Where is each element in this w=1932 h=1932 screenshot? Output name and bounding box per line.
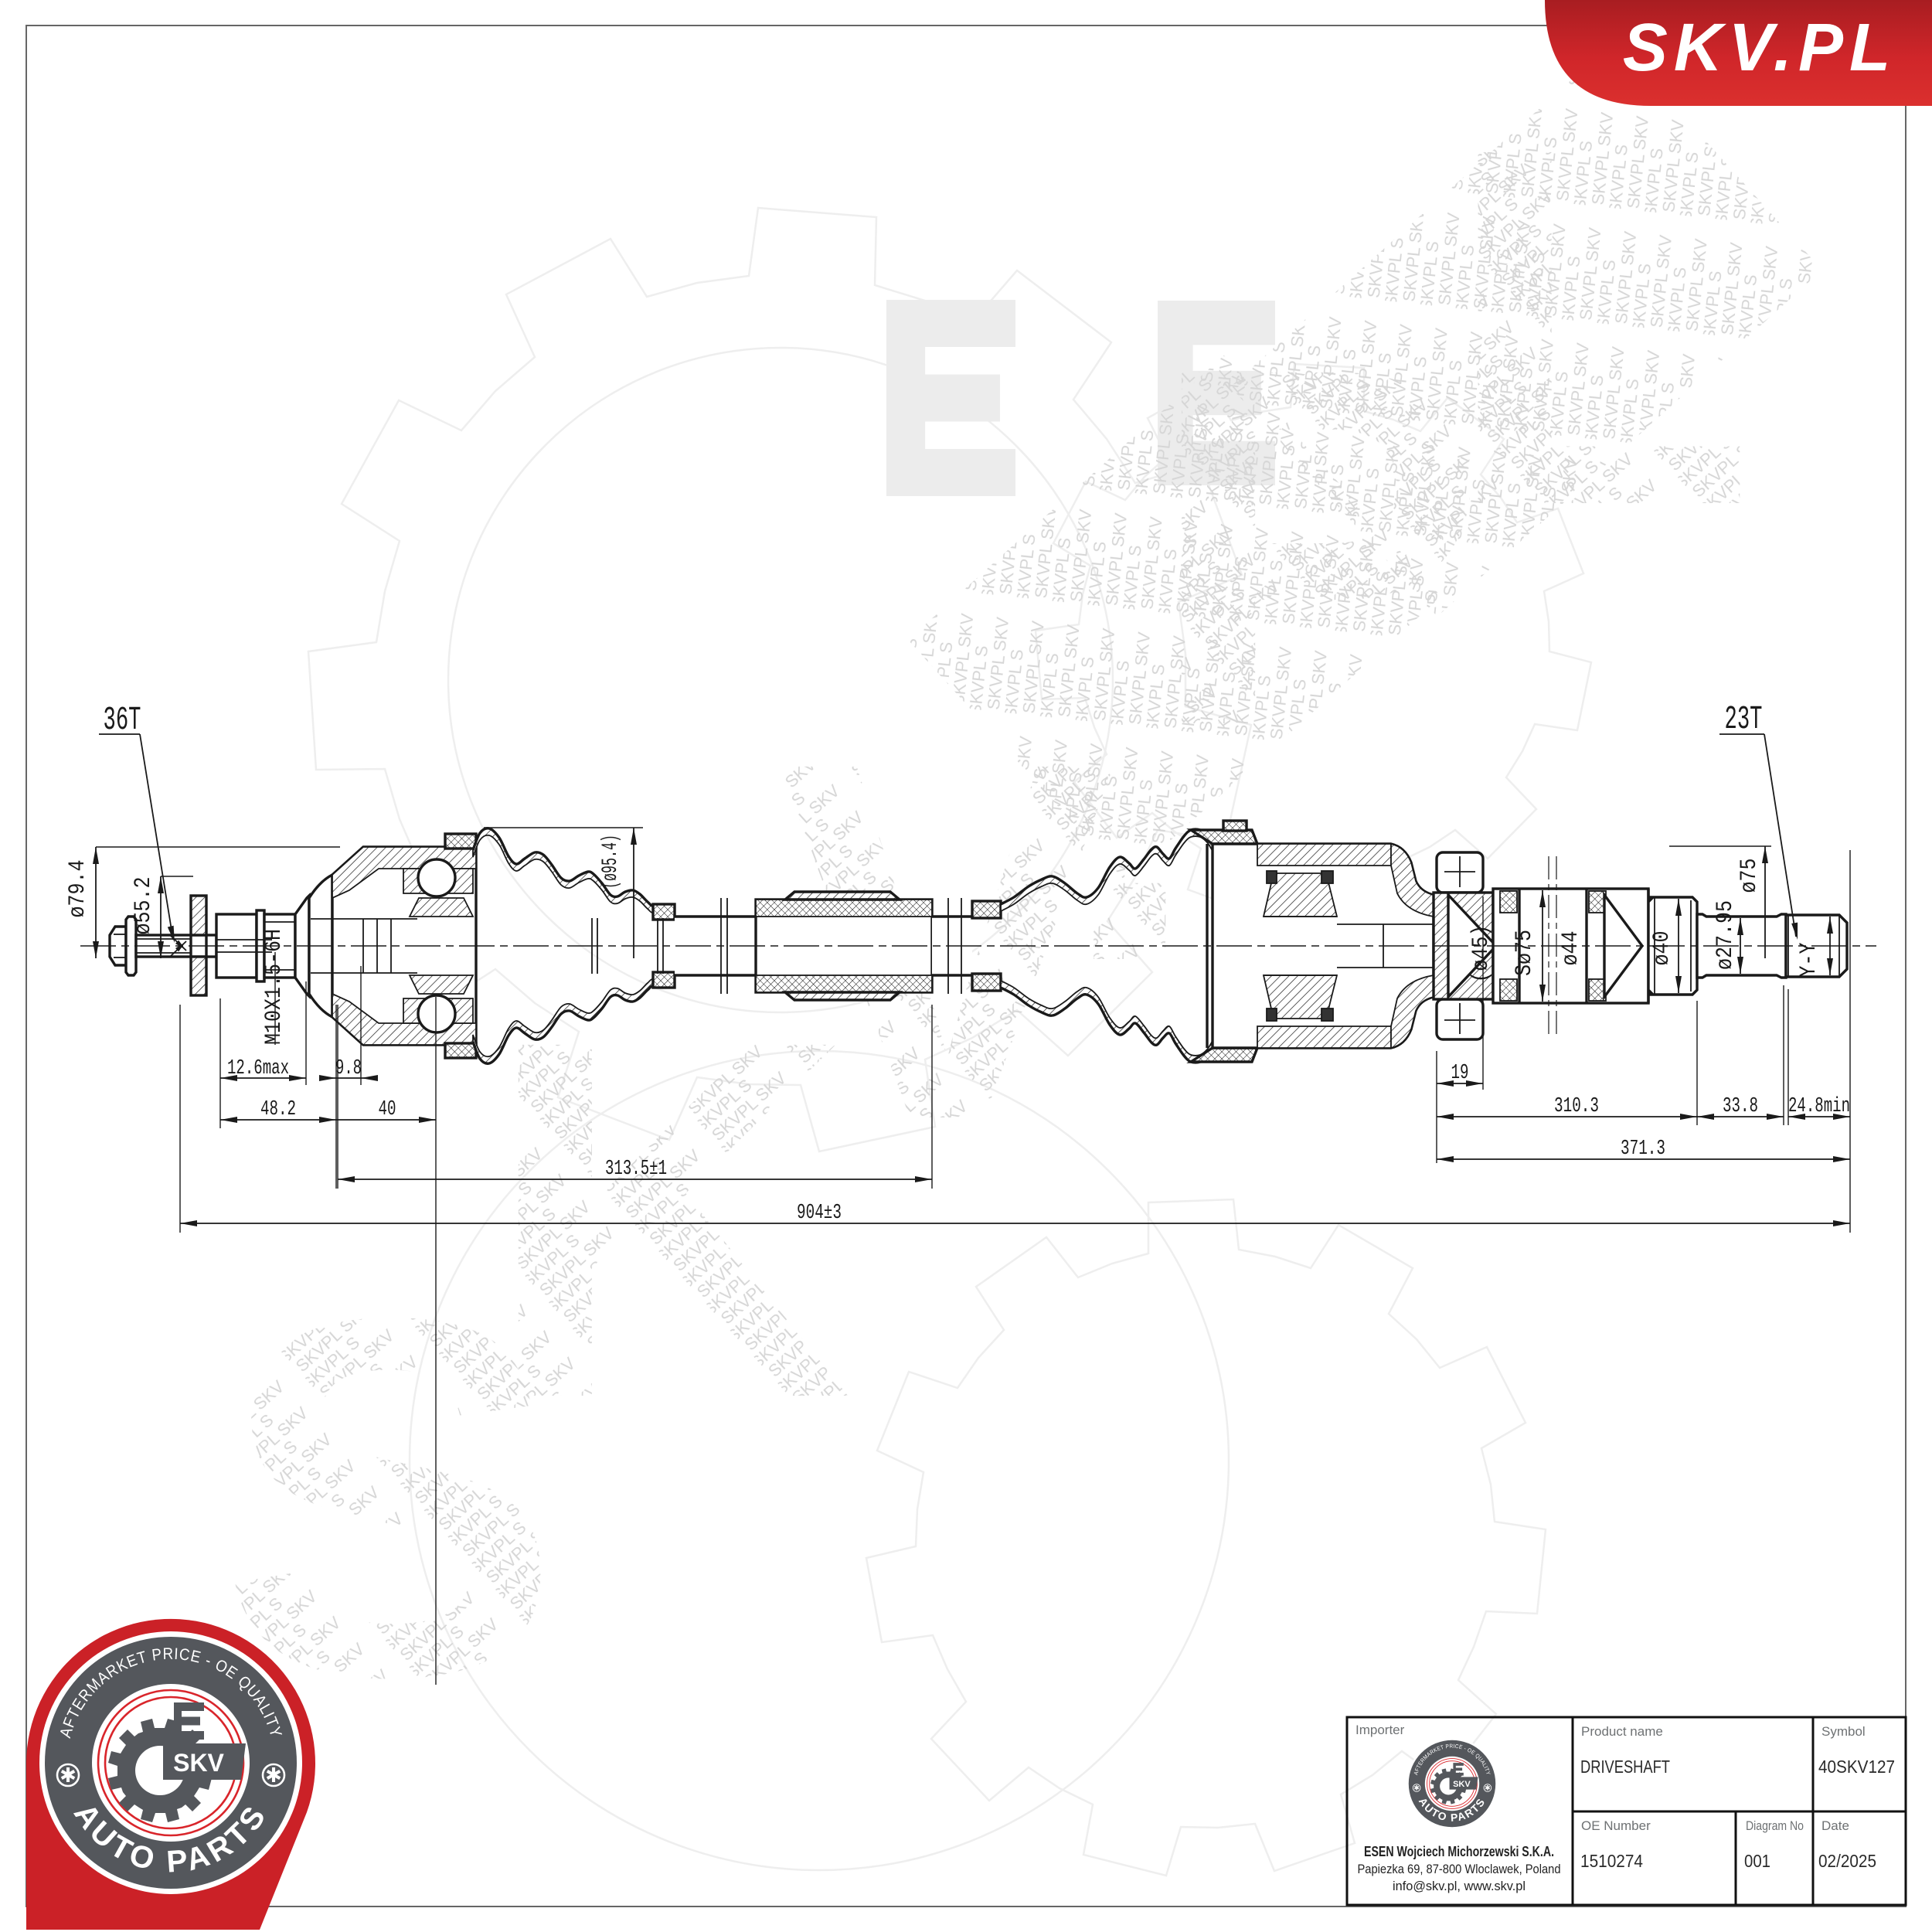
svg-text:✱: ✱ bbox=[60, 1764, 77, 1787]
svg-text:ø44: ø44 bbox=[1558, 931, 1584, 966]
svg-text:✱: ✱ bbox=[1413, 1784, 1420, 1792]
svg-text:SKV.PL: SKV.PL bbox=[1623, 10, 1896, 85]
svg-text:ø79.4: ø79.4 bbox=[65, 860, 91, 918]
svg-text:ø40: ø40 bbox=[1649, 931, 1675, 966]
svg-text:ESEN Wojciech Michorzewski S.K: ESEN Wojciech Michorzewski S.K.A. bbox=[1364, 1844, 1554, 1859]
svg-text:✱: ✱ bbox=[1485, 1784, 1491, 1792]
svg-text:48.2: 48.2 bbox=[260, 1098, 296, 1121]
svg-text:9.8: 9.8 bbox=[335, 1057, 362, 1080]
svg-text:SKV: SKV bbox=[1453, 1780, 1471, 1789]
svg-text:313.5±1: 313.5±1 bbox=[605, 1158, 667, 1181]
svg-text:SKV: SKV bbox=[173, 1749, 224, 1777]
svg-text:Symbol: Symbol bbox=[1821, 1724, 1866, 1739]
svg-text:OE Number: OE Number bbox=[1581, 1818, 1651, 1833]
svg-text:40SKV127: 40SKV127 bbox=[1818, 1757, 1895, 1777]
svg-text:✱: ✱ bbox=[265, 1764, 282, 1787]
svg-text:(ø45): (ø45) bbox=[1468, 925, 1495, 983]
svg-text:info@skv.pl, www.skv.pl: info@skv.pl, www.skv.pl bbox=[1393, 1879, 1526, 1893]
svg-text:12.6max: 12.6max bbox=[227, 1057, 289, 1080]
svg-text:001: 001 bbox=[1744, 1851, 1770, 1871]
svg-text:33.8: 33.8 bbox=[1723, 1095, 1758, 1118]
svg-text:02/2025: 02/2025 bbox=[1818, 1851, 1876, 1871]
svg-text:40: 40 bbox=[379, 1098, 396, 1121]
svg-text:904±3: 904±3 bbox=[797, 1202, 842, 1225]
svg-text:ø27.95: ø27.95 bbox=[1713, 900, 1739, 970]
svg-text:1510274: 1510274 bbox=[1580, 1851, 1643, 1871]
svg-text:371.3: 371.3 bbox=[1621, 1138, 1665, 1161]
svg-text:Product name: Product name bbox=[1581, 1724, 1663, 1739]
svg-text:ø75: ø75 bbox=[1736, 859, 1763, 893]
svg-text:Papiezka 69, 87-800 Wloclawek,: Papiezka 69, 87-800 Wloclawek, Poland bbox=[1358, 1862, 1561, 1876]
svg-text:Importer: Importer bbox=[1355, 1723, 1405, 1737]
svg-text:DRIVESHAFT: DRIVESHAFT bbox=[1580, 1757, 1670, 1777]
svg-text:Sø75: Sø75 bbox=[1512, 930, 1538, 976]
svg-text:24.8min: 24.8min bbox=[1788, 1095, 1850, 1118]
svg-text:ø55.2: ø55.2 bbox=[131, 877, 157, 935]
svg-text:310.3: 310.3 bbox=[1554, 1095, 1599, 1118]
svg-text:19: 19 bbox=[1451, 1062, 1469, 1085]
svg-text:Date: Date bbox=[1821, 1818, 1849, 1833]
svg-text:M10X1.5-6H: M10X1.5-6H bbox=[261, 929, 287, 1045]
svg-text:P: P bbox=[1148, 262, 1488, 832]
svg-text:Y-Y: Y-Y bbox=[1796, 943, 1822, 978]
svg-text:Diagram No: Diagram No bbox=[1746, 1818, 1804, 1833]
svg-text:(ø95.4): (ø95.4) bbox=[599, 835, 623, 889]
svg-text:L: L bbox=[1444, 42, 1755, 611]
svg-text:36T: 36T bbox=[104, 701, 141, 739]
svg-text:23T: 23T bbox=[1725, 700, 1763, 738]
